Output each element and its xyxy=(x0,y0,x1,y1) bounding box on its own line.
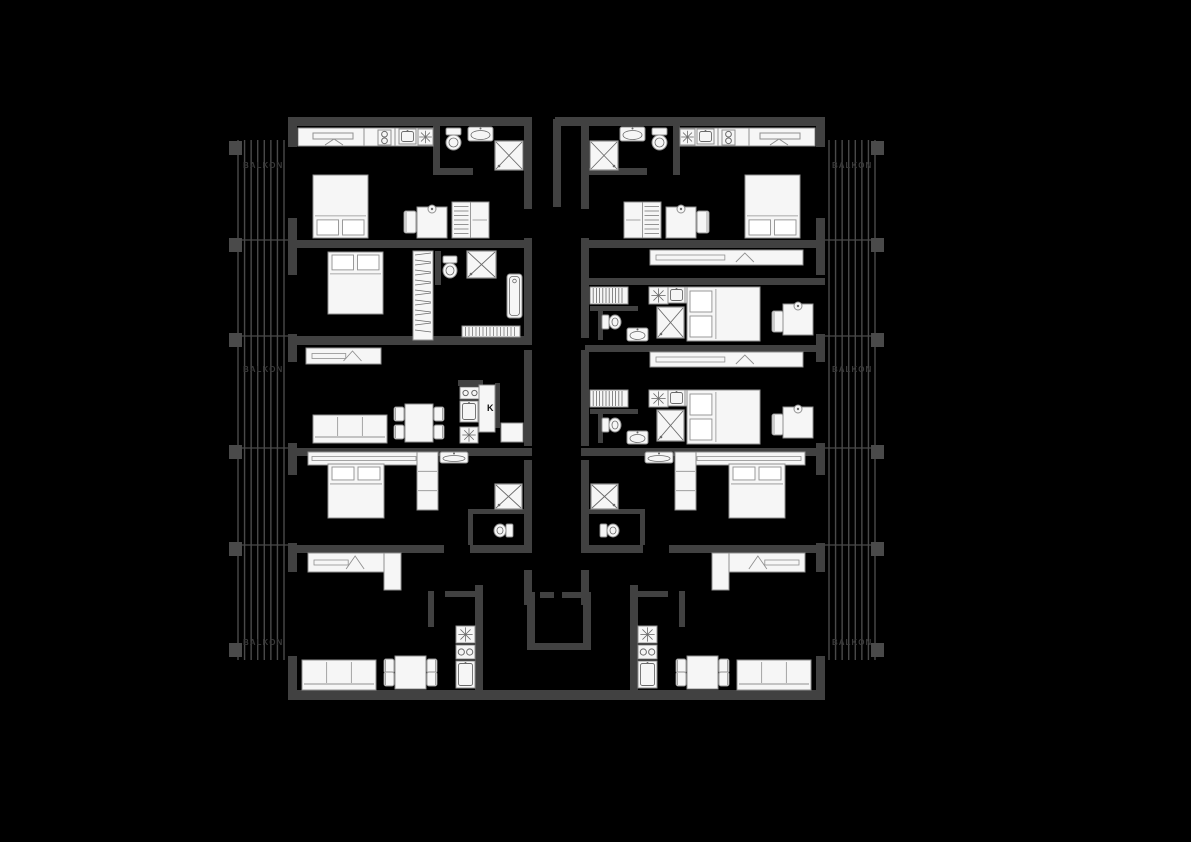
wall xyxy=(636,591,668,597)
bed xyxy=(729,464,785,518)
appliance-star-icon xyxy=(418,129,433,145)
balcony-label: BALKON xyxy=(243,638,283,647)
wall xyxy=(581,350,589,446)
wall xyxy=(590,306,638,311)
kitchen-sink xyxy=(668,287,685,303)
wall xyxy=(581,460,589,552)
wall xyxy=(288,543,297,572)
kitchen-sink xyxy=(456,661,475,688)
labels: K xyxy=(487,403,494,413)
radiator xyxy=(462,326,520,337)
wall xyxy=(475,585,483,700)
wall xyxy=(433,168,473,175)
wardrobe xyxy=(675,452,696,510)
toilet xyxy=(446,128,461,150)
balcony-pier xyxy=(871,238,884,252)
wall xyxy=(435,251,441,285)
wall xyxy=(816,656,825,700)
sideboard xyxy=(308,553,384,572)
balcony-pier xyxy=(871,643,884,657)
desk xyxy=(417,205,447,238)
kitchen-sink xyxy=(399,129,416,144)
washbasin xyxy=(645,452,673,463)
wall xyxy=(524,350,532,446)
balcony-label: BALKON xyxy=(832,161,872,170)
wall xyxy=(288,690,825,700)
balcony-pier xyxy=(871,141,884,155)
bed xyxy=(313,175,368,238)
shower xyxy=(590,141,618,170)
balcony-pier xyxy=(871,333,884,347)
kitchen-sink xyxy=(638,661,657,688)
wall xyxy=(581,117,589,209)
washbasin xyxy=(627,328,648,341)
balcony-label: BALKON xyxy=(243,365,283,374)
balcony-pier xyxy=(871,542,884,556)
toilet xyxy=(494,524,513,537)
sideboard xyxy=(650,250,803,265)
wardrobe xyxy=(417,452,438,510)
desk xyxy=(783,302,813,335)
wall xyxy=(288,545,444,553)
wall xyxy=(428,591,434,627)
toilet xyxy=(652,128,667,150)
wall xyxy=(524,460,532,552)
wall xyxy=(640,514,645,545)
wall xyxy=(581,545,643,553)
appliance-star-icon xyxy=(638,626,657,643)
chair xyxy=(772,414,783,435)
balcony-pier xyxy=(229,238,242,252)
chair xyxy=(404,211,416,233)
washbasin xyxy=(468,127,493,141)
wall xyxy=(553,119,561,207)
bed xyxy=(687,287,760,341)
wall xyxy=(679,591,685,627)
balcony-pier xyxy=(871,445,884,459)
bed xyxy=(328,464,384,518)
toilet xyxy=(602,315,621,329)
wall xyxy=(288,656,297,700)
headboard-shelf xyxy=(308,452,420,465)
bathtub xyxy=(507,274,522,318)
bed xyxy=(328,252,383,314)
wall xyxy=(288,218,297,275)
wall xyxy=(816,443,825,475)
balcony-pier xyxy=(229,141,242,155)
stove-burners xyxy=(638,645,657,659)
wall xyxy=(540,592,554,598)
wall xyxy=(468,514,473,545)
sideboard xyxy=(306,348,381,364)
stove-burners xyxy=(378,130,391,145)
wall xyxy=(288,443,297,475)
wardrobe xyxy=(413,251,433,340)
floor-plan-canvas: BALKONBALKONBALKONBALKONBALKONBALKONK xyxy=(0,0,1191,842)
wall xyxy=(581,238,589,338)
wall xyxy=(470,545,532,553)
wall xyxy=(524,117,532,209)
coat-rack xyxy=(590,287,628,304)
wall xyxy=(583,592,591,649)
shower xyxy=(591,484,618,509)
wall xyxy=(288,117,532,126)
wall xyxy=(581,117,825,126)
sideboard xyxy=(650,352,803,367)
wall xyxy=(816,117,825,147)
shower xyxy=(657,307,684,338)
washbasin xyxy=(620,127,645,141)
sofa xyxy=(313,415,387,443)
wall xyxy=(495,383,500,428)
floor-plan: BALKONBALKONBALKONBALKONBALKONBALKONK xyxy=(0,0,1191,842)
balcony-pier xyxy=(229,333,242,347)
wall xyxy=(816,218,825,275)
wall xyxy=(669,545,825,553)
shower xyxy=(467,251,496,278)
wall xyxy=(433,117,440,175)
dining-table xyxy=(384,656,437,689)
washbasin xyxy=(440,452,468,463)
wall xyxy=(445,591,477,597)
appliance-star-icon xyxy=(456,626,475,643)
wall xyxy=(581,240,825,248)
shower xyxy=(495,141,523,170)
appliance-star-icon xyxy=(649,390,668,407)
headboard-shelf xyxy=(693,452,805,465)
shower xyxy=(495,484,522,509)
wall xyxy=(288,117,297,147)
kitchen-sink xyxy=(668,390,685,406)
toilet xyxy=(602,418,621,432)
wall xyxy=(288,240,532,248)
sofa xyxy=(737,660,811,690)
kitchen-sink xyxy=(460,401,478,422)
wall xyxy=(630,585,638,700)
wall xyxy=(288,334,297,362)
balcony-pier xyxy=(229,445,242,459)
stove-burners xyxy=(722,130,735,145)
wall xyxy=(585,278,825,285)
wall xyxy=(590,409,638,414)
sofa xyxy=(302,660,376,690)
wall xyxy=(562,592,583,598)
wall xyxy=(527,643,591,650)
kitchen-K-label: K xyxy=(487,403,494,413)
balcony-label: BALKON xyxy=(832,638,872,647)
balcony-pier xyxy=(229,542,242,556)
cabinet-box xyxy=(384,553,401,590)
desk xyxy=(666,205,696,238)
wall xyxy=(673,117,680,175)
background xyxy=(0,0,1191,842)
bed xyxy=(687,390,760,444)
kitchen-sink xyxy=(697,129,714,144)
toilet xyxy=(443,256,457,278)
stove-burners xyxy=(456,645,475,659)
shower xyxy=(657,410,684,441)
appliance-star-icon xyxy=(649,287,668,304)
balcony-label: BALKON xyxy=(832,365,872,374)
desk xyxy=(783,405,813,438)
appliance-star-icon xyxy=(680,129,695,145)
balcony-label: BALKON xyxy=(243,161,283,170)
wall xyxy=(524,238,532,338)
wall xyxy=(816,543,825,572)
cabinet-box xyxy=(501,423,523,442)
chair xyxy=(697,211,709,233)
wall xyxy=(468,509,526,514)
washbasin xyxy=(627,431,648,444)
stove-burners xyxy=(460,387,480,399)
chair xyxy=(772,311,783,332)
wall xyxy=(587,509,645,514)
wall xyxy=(527,592,535,649)
coat-rack xyxy=(590,390,628,407)
wardrobe xyxy=(452,202,489,238)
dining-table xyxy=(676,656,729,689)
wall xyxy=(585,345,825,352)
sideboard xyxy=(729,553,805,572)
toilet xyxy=(600,524,619,537)
appliance-star-icon xyxy=(460,427,478,443)
balcony-pier xyxy=(229,643,242,657)
wardrobe xyxy=(624,202,661,238)
cabinet-box xyxy=(712,553,729,590)
bed xyxy=(745,175,800,238)
